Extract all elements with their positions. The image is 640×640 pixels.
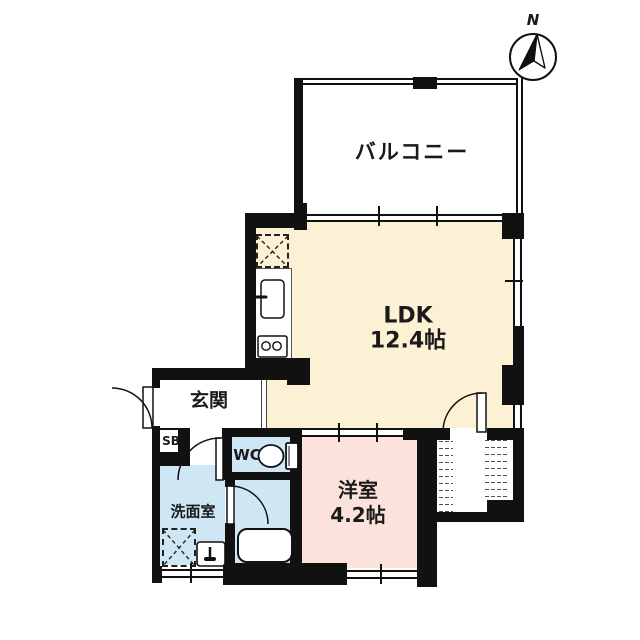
toilet-tank xyxy=(286,443,298,469)
north-compass xyxy=(510,34,556,80)
ldk-name: LDK xyxy=(370,304,446,329)
floor-plan: N バルコニー LDK 12.4帖 玄関 SB WC 洗面室 洋室 4.2帖 xyxy=(0,0,640,640)
washroom-door-arc xyxy=(178,438,220,480)
burner-icon xyxy=(262,342,270,350)
closet-door-leaf xyxy=(477,393,486,432)
toilet-bowl xyxy=(259,445,284,467)
ldk-label: LDK 12.4帖 xyxy=(370,304,446,355)
balcony-label: バルコニー xyxy=(355,136,470,166)
washroom-label: 洗面室 xyxy=(170,501,215,522)
western-room-label: 洋室 4.2帖 xyxy=(330,478,385,528)
bathtub xyxy=(238,529,292,562)
bath-door-arc xyxy=(230,486,268,524)
refrigerator-x xyxy=(257,236,288,267)
western-room-name: 洋室 xyxy=(330,478,385,503)
shoe-box-label: SB xyxy=(162,434,180,448)
wc-label: WC xyxy=(233,446,261,464)
ldk-size: 12.4帖 xyxy=(370,329,446,354)
closet-door-arc xyxy=(443,393,482,432)
fixtures-overlay xyxy=(0,0,640,640)
washing-machine-x xyxy=(163,530,195,566)
bath-door-leaf xyxy=(227,486,234,524)
basin-tap-base xyxy=(204,557,216,561)
western-room-size: 4.2帖 xyxy=(330,503,385,528)
compass-label: N xyxy=(527,11,540,29)
kitchen-sink xyxy=(261,280,284,318)
washroom-door-leaf xyxy=(216,438,223,480)
entrance-label: 玄関 xyxy=(190,386,228,413)
burner-icon xyxy=(273,342,281,350)
